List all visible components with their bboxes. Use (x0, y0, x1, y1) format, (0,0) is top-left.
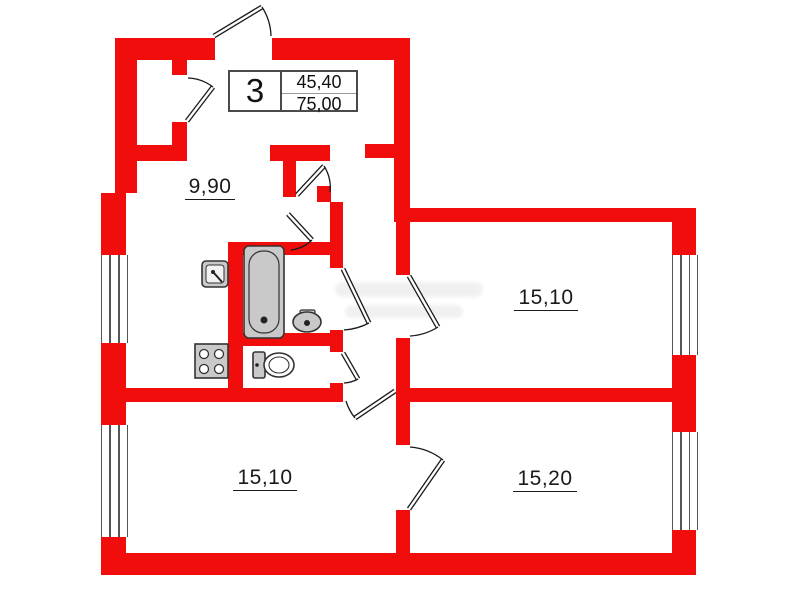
room-bottom-left-door (346, 391, 395, 418)
wall-hall-pier (317, 186, 331, 202)
wall-hall-stub-right (365, 144, 394, 158)
toilet-icon (253, 352, 294, 378)
wall-bath-top (243, 242, 343, 255)
rooms-count: 3 (230, 72, 282, 110)
wall-right-2 (672, 355, 696, 432)
wall-storage-bottom (172, 122, 187, 161)
floor-plan: 3 45,40 75,00 9,90 15,10 15,10 15,20 (0, 0, 800, 600)
room-bottom-right-area-label: 15,20 (490, 467, 600, 491)
wall-hall-stub (283, 161, 296, 197)
wall-storage-top (172, 60, 187, 75)
area-summary: 45,40 75,00 (282, 72, 356, 110)
wall-middle-right (410, 388, 672, 402)
wall-bottom (101, 553, 696, 575)
bathtub-icon (244, 246, 284, 338)
wall-right-1 (672, 208, 696, 255)
wall-main-vertical-2 (396, 222, 410, 275)
window-left-lower (101, 425, 128, 537)
wall-wc-right-top (330, 346, 343, 352)
room-bottom-right-door (409, 447, 443, 509)
wall-hall-left (137, 145, 172, 161)
bathroom-door (343, 269, 369, 330)
watermark (345, 305, 463, 318)
room-bottom-left-area-label: 15,10 (210, 466, 320, 490)
wall-middle-left (126, 388, 228, 402)
title-block: 3 45,40 75,00 (228, 70, 358, 112)
room-right-area-label: 15,10 (491, 286, 601, 310)
window-right-lower (672, 432, 698, 530)
entrance-door (214, 7, 271, 36)
window-left-upper (101, 255, 128, 343)
total-area-value: 75,00 (282, 94, 356, 115)
kitchen-area-label: 9,90 (155, 175, 265, 199)
watermark (335, 282, 483, 297)
washbasin-icon (293, 310, 321, 332)
wall-left-2 (101, 193, 126, 255)
wall-top-right (272, 38, 410, 60)
kitchen-sink-icon (202, 261, 228, 287)
living-area-value: 45,40 (282, 72, 356, 94)
stove-icon (195, 344, 228, 378)
wall-middle-center (243, 388, 343, 402)
wall-bath-right-top (330, 255, 343, 268)
wall-left-3 (101, 343, 126, 425)
wall-bath-wc-divider (243, 333, 343, 346)
wall-bath-left (228, 242, 243, 402)
storage-door (187, 78, 213, 121)
wall-right-section-top (408, 208, 672, 222)
wall-main-vertical-3 (396, 338, 410, 445)
window-right-upper (672, 255, 698, 355)
wall-hall-right (270, 145, 330, 161)
wall-main-vertical-4 (396, 510, 410, 553)
wall-right-3 (672, 530, 696, 575)
wall-nook (330, 202, 343, 242)
wall-left-upper (115, 38, 137, 193)
wall-main-vertical-1 (394, 38, 410, 222)
wc-door (343, 353, 358, 383)
